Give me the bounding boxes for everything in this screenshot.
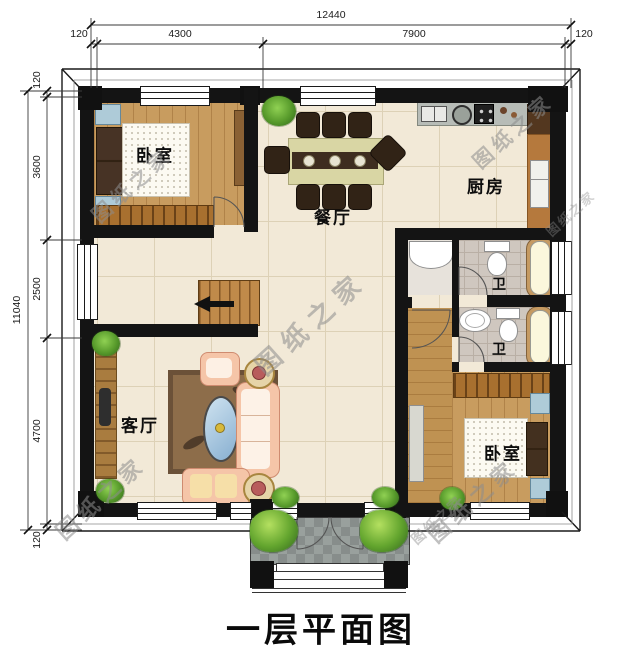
coffee-table-decor: [215, 423, 225, 433]
room-label-bath-lower: 卫: [492, 339, 506, 359]
toilet-tank: [496, 308, 520, 319]
fridge: [530, 160, 549, 208]
armchair-cushion: [206, 358, 232, 378]
porch-column: [250, 561, 274, 588]
room-label-bath-upper: 卫: [492, 274, 506, 294]
wall-bath-bedroom-left: [452, 362, 459, 372]
room-label-living: 客厅: [121, 412, 159, 437]
window: [140, 86, 210, 106]
wall-bath-lower-left: [452, 307, 459, 337]
sink-icon: [452, 105, 472, 125]
dim-left-seg-4700: 4700: [31, 419, 43, 442]
wall-bedroom-bottom: [80, 225, 214, 238]
dim-left-seg-3600: 3600: [31, 155, 43, 178]
wall-bath-divider-left: [452, 295, 459, 307]
window: [551, 241, 572, 295]
tv: [99, 388, 111, 426]
plate: [354, 155, 366, 167]
window: [137, 502, 217, 520]
dim-top-overall: 12440: [316, 9, 345, 21]
bed-headboard: [526, 422, 548, 476]
toilet-tank: [484, 241, 510, 252]
dim-left-seg-120b: 120: [31, 531, 43, 549]
cooktop-icon: [474, 104, 494, 124]
wall-bedroom-dining: [244, 88, 258, 232]
porch-column: [384, 561, 408, 588]
plate: [329, 155, 341, 167]
sofa-small-cushion: [190, 474, 212, 498]
window: [551, 311, 572, 365]
window: [77, 244, 98, 320]
wall-hall-right-vertical: [395, 228, 408, 517]
room-label-kitchen: 厨房: [467, 173, 505, 198]
potted-plant: [372, 487, 399, 508]
dim-top-seg-7900: 7900: [402, 28, 425, 40]
porch-bush: [250, 510, 298, 552]
drawing-title: 一层平面图: [226, 603, 416, 652]
utensil-icon: [500, 107, 507, 114]
dim-top-seg-4300: 4300: [168, 28, 191, 40]
potted-plant: [272, 487, 299, 508]
dining-chair: [348, 112, 372, 138]
dim-left-seg-120t: 120: [31, 71, 43, 89]
potted-plant: [92, 331, 120, 356]
side-table-flower: [251, 481, 266, 496]
wall-shower-partition: [452, 240, 459, 297]
sofa-cushions: [241, 389, 270, 469]
stove-icon: [421, 106, 447, 122]
room-label-dining: 餐厅: [314, 204, 352, 229]
window: [300, 86, 376, 106]
corner-column: [78, 86, 102, 110]
dining-chair: [296, 112, 320, 138]
wall-bath-divider-right: [487, 295, 566, 307]
nightstand: [530, 393, 550, 414]
wall-kitchen-bottom: [395, 228, 566, 240]
dim-left-overall: 11040: [11, 296, 23, 324]
staircase: [198, 280, 260, 326]
toilet-bowl: [487, 252, 507, 276]
window: [230, 502, 252, 520]
wall-bedroom2-door-side: [395, 297, 412, 308]
potted-plant: [262, 96, 296, 126]
dim-top-seg-120l: 120: [70, 28, 88, 40]
dining-chair: [264, 146, 290, 174]
plate: [303, 155, 315, 167]
porch-bush: [360, 510, 408, 552]
entry-step-base: [252, 588, 406, 593]
corner-column: [546, 491, 568, 517]
bathtub-inner: [530, 241, 550, 295]
dresser: [409, 405, 424, 482]
dim-left-seg-2500: 2500: [31, 277, 43, 300]
sofa-small-cushion: [215, 474, 237, 498]
dim-top-seg-120r: 120: [575, 28, 593, 40]
dining-chair: [322, 112, 346, 138]
bathtub-inner: [530, 310, 550, 364]
wash-basin-inner: [465, 313, 485, 328]
floor-plan-canvas: 卧室 餐厅 厨房 卫 卫 客厅 卧室 图纸之家 图纸之家 图纸之家 图纸之家 图…: [0, 0, 640, 659]
corner-shower: [409, 241, 453, 269]
